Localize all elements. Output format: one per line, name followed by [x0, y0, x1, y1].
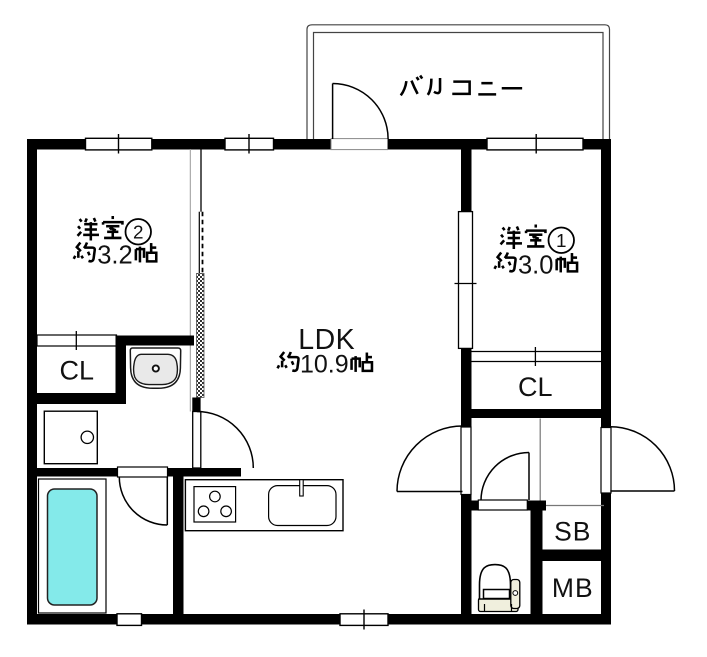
svg-text:CL: CL: [518, 372, 553, 402]
svg-text:3.2: 3.2: [97, 241, 132, 269]
svg-text:CL: CL: [60, 356, 95, 386]
svg-text:10.9: 10.9: [300, 351, 349, 379]
svg-text:SB: SB: [554, 517, 591, 547]
svg-text:3.0: 3.0: [518, 251, 553, 279]
svg-text:MB: MB: [552, 573, 594, 603]
